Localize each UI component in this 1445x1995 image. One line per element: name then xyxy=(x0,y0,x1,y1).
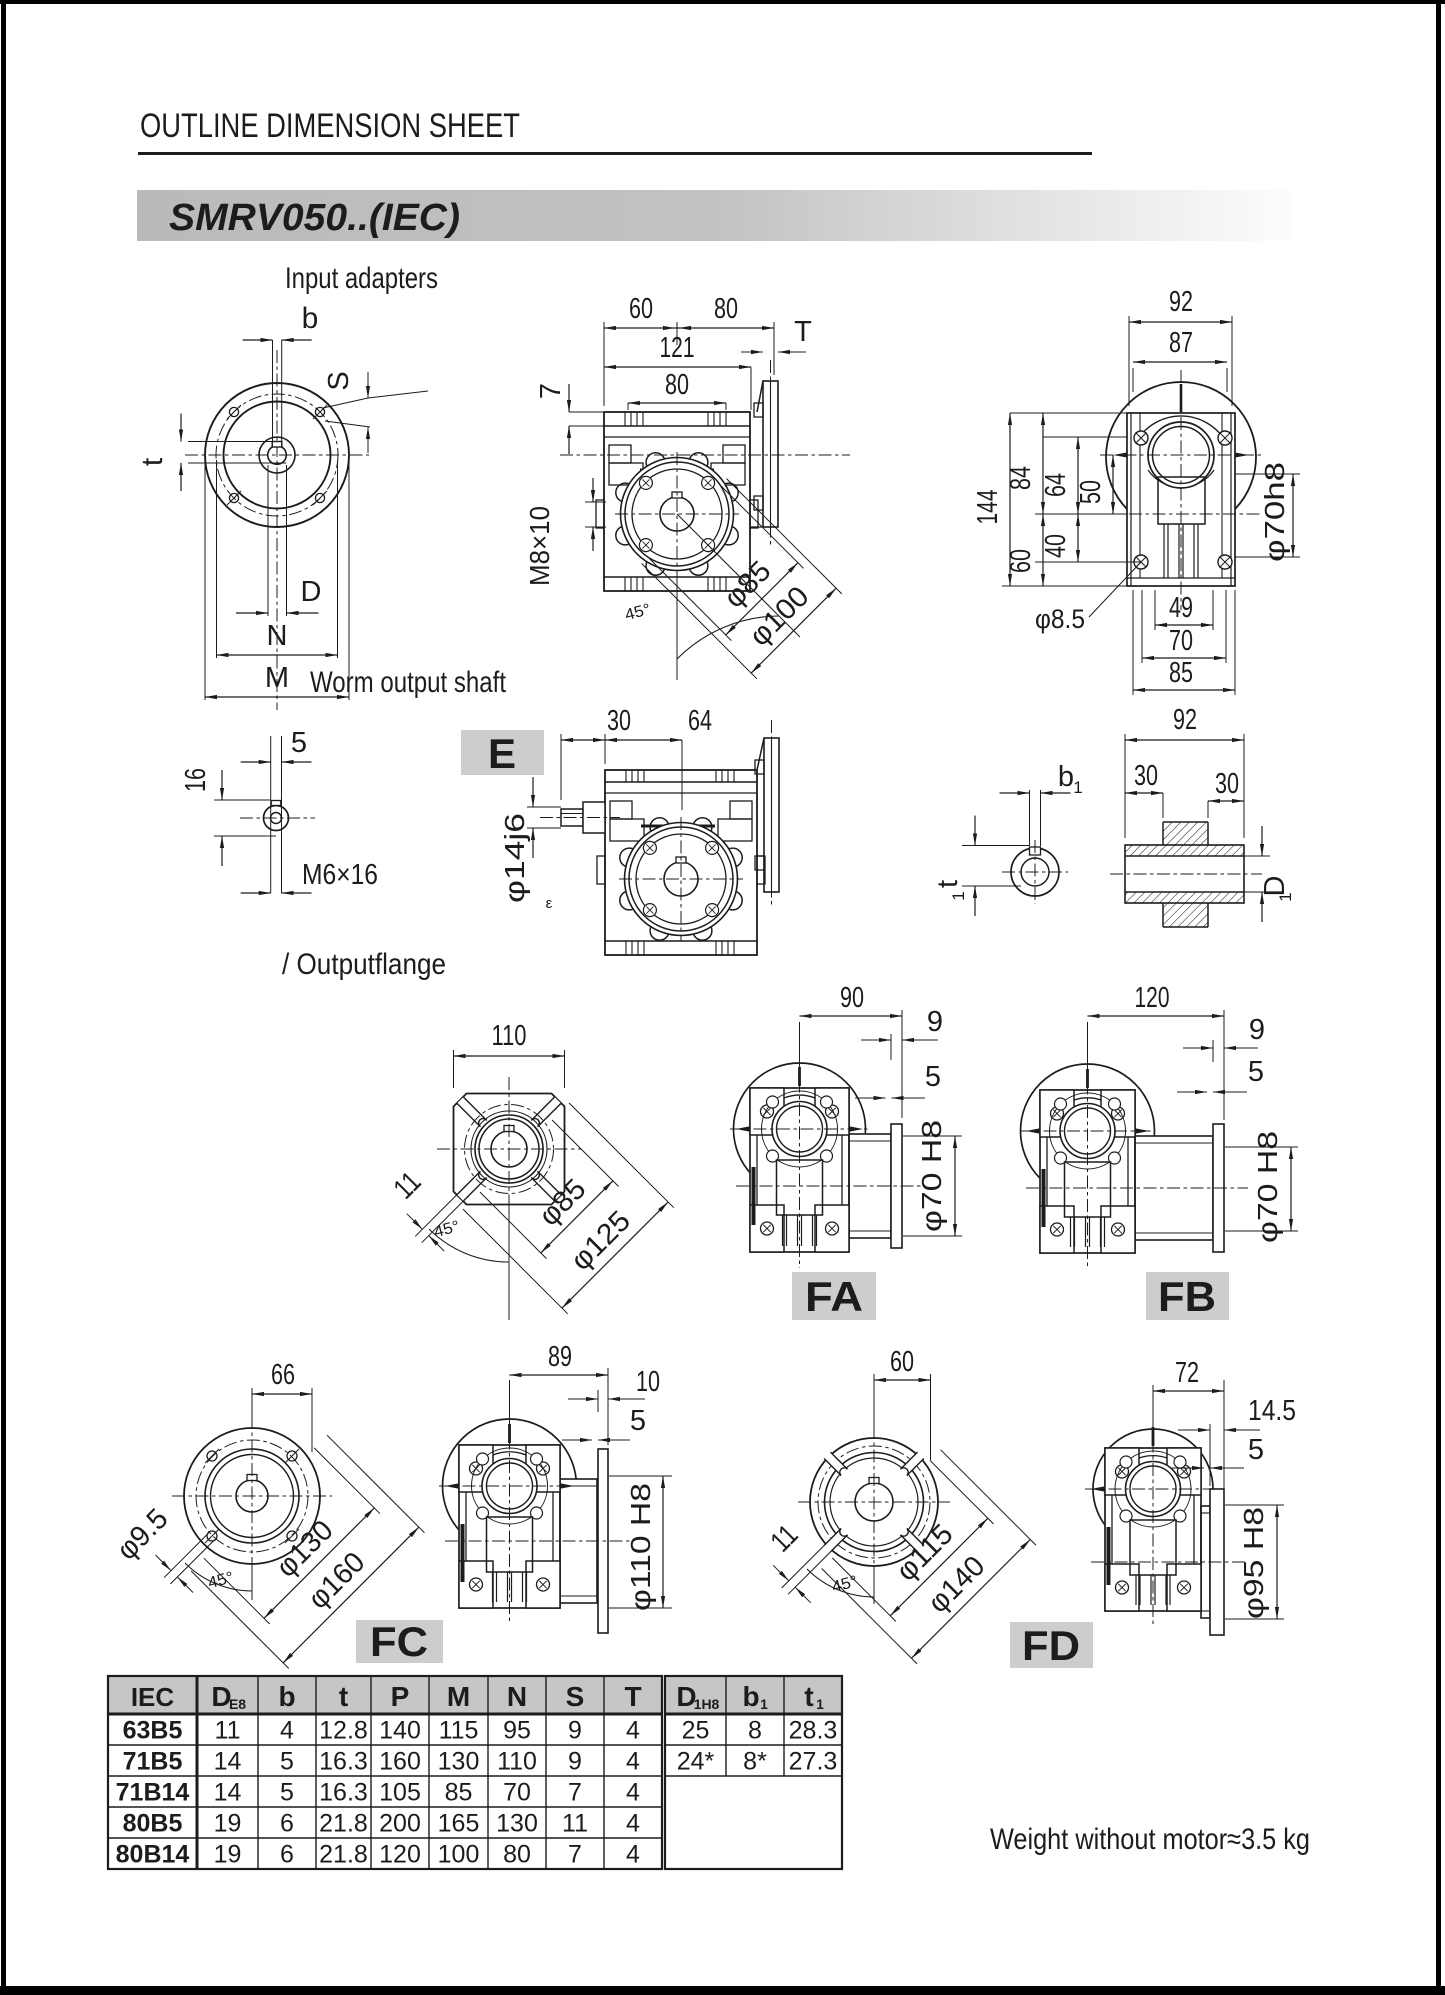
svg-text:27.3: 27.3 xyxy=(789,1748,838,1776)
svg-text:70: 70 xyxy=(1169,625,1193,657)
svg-text:130: 130 xyxy=(496,1810,538,1838)
svg-text:8: 8 xyxy=(748,1717,762,1745)
svg-text:φ110 H8: φ110 H8 xyxy=(625,1483,656,1611)
svg-text:1: 1 xyxy=(816,1696,824,1712)
svg-text:49: 49 xyxy=(1169,592,1193,624)
svg-text:FA: FA xyxy=(805,1273,863,1320)
svg-text:80: 80 xyxy=(714,293,738,325)
svg-text:92: 92 xyxy=(1173,704,1197,736)
svg-text:60: 60 xyxy=(890,1346,914,1378)
svg-text:Weight without motor≈3.5 kg: Weight without motor≈3.5 kg xyxy=(990,1823,1310,1856)
svg-text:16.3: 16.3 xyxy=(319,1779,368,1807)
svg-text:16: 16 xyxy=(180,768,212,792)
svg-text:8*: 8* xyxy=(743,1748,767,1776)
svg-text:OUTLINE DIMENSION SHEET: OUTLINE DIMENSION SHEET xyxy=(140,107,520,145)
svg-text:110: 110 xyxy=(492,1020,527,1052)
svg-text:16.3: 16.3 xyxy=(319,1748,368,1776)
svg-text:5: 5 xyxy=(630,1405,646,1437)
svg-text:Worm output shaft: Worm output shaft xyxy=(310,666,507,699)
svg-text:N: N xyxy=(507,1681,527,1712)
svg-text:120: 120 xyxy=(379,1841,421,1869)
svg-text:24*: 24* xyxy=(677,1748,715,1776)
svg-text:t: t xyxy=(136,457,169,466)
svg-text:66: 66 xyxy=(271,1359,295,1391)
svg-text:64: 64 xyxy=(688,705,712,737)
svg-text:SMRV050..(IEC): SMRV050..(IEC) xyxy=(169,197,460,239)
svg-text:95: 95 xyxy=(503,1717,531,1745)
svg-text:φ125: φ125 xyxy=(565,1205,637,1277)
svg-text:19: 19 xyxy=(214,1810,242,1838)
svg-text:19: 19 xyxy=(214,1841,242,1869)
svg-text:M: M xyxy=(447,1681,470,1712)
svg-text:63B5: 63B5 xyxy=(123,1717,183,1745)
svg-text:72: 72 xyxy=(1175,1357,1199,1389)
svg-text:4: 4 xyxy=(626,1748,640,1776)
svg-text:120: 120 xyxy=(1135,982,1170,1014)
svg-text:105: 105 xyxy=(379,1779,421,1807)
svg-text:E: E xyxy=(488,730,516,777)
svg-text:b: b xyxy=(742,1681,759,1712)
svg-text:4: 4 xyxy=(280,1717,294,1745)
svg-text:64: 64 xyxy=(1040,473,1072,497)
svg-text:71B5: 71B5 xyxy=(123,1748,183,1776)
svg-text:5: 5 xyxy=(280,1779,294,1807)
svg-text:/ Outputflange: / Outputflange xyxy=(282,948,446,981)
svg-text:t: t xyxy=(932,880,964,888)
svg-text:30: 30 xyxy=(1215,768,1239,800)
svg-text:T: T xyxy=(624,1681,641,1712)
svg-text:φ70h8: φ70h8 xyxy=(1259,462,1290,562)
svg-text:7: 7 xyxy=(535,383,567,399)
svg-text:130: 130 xyxy=(438,1748,480,1776)
svg-text:50: 50 xyxy=(1075,480,1107,504)
svg-text:115: 115 xyxy=(439,1717,479,1745)
svg-text:7: 7 xyxy=(568,1779,582,1807)
svg-text:ε: ε xyxy=(546,895,553,912)
svg-text:E8: E8 xyxy=(229,1696,246,1712)
svg-text:30: 30 xyxy=(1134,760,1158,792)
svg-text:4: 4 xyxy=(626,1841,640,1869)
svg-text:80B14: 80B14 xyxy=(116,1841,190,1869)
svg-text:T: T xyxy=(794,316,812,348)
svg-text:9: 9 xyxy=(568,1717,582,1745)
svg-text:7: 7 xyxy=(568,1841,582,1869)
svg-text:45°: 45° xyxy=(623,601,653,624)
svg-text:89: 89 xyxy=(548,1341,572,1373)
svg-text:FD: FD xyxy=(1022,1622,1080,1669)
svg-text:φ95 H8: φ95 H8 xyxy=(1238,1507,1269,1619)
svg-text:t: t xyxy=(339,1681,348,1712)
svg-text:S: S xyxy=(323,371,355,390)
svg-text:5: 5 xyxy=(925,1061,941,1093)
svg-text:85: 85 xyxy=(445,1779,473,1807)
svg-text:5: 5 xyxy=(1248,1056,1264,1088)
svg-text:28.3: 28.3 xyxy=(789,1717,838,1745)
svg-text:21.8: 21.8 xyxy=(319,1841,368,1869)
svg-text:IEC: IEC xyxy=(131,1682,175,1712)
svg-text:4: 4 xyxy=(626,1717,640,1745)
svg-text:60: 60 xyxy=(629,293,653,325)
svg-text:6: 6 xyxy=(280,1810,294,1838)
svg-text:FC: FC xyxy=(370,1618,428,1665)
svg-text:9: 9 xyxy=(927,1006,943,1038)
svg-text:200: 200 xyxy=(379,1810,421,1838)
svg-text:45°: 45° xyxy=(830,1573,860,1596)
svg-text:11: 11 xyxy=(562,1810,588,1838)
svg-text:30: 30 xyxy=(607,705,631,737)
svg-text:21.8: 21.8 xyxy=(319,1810,368,1838)
svg-text:165: 165 xyxy=(438,1810,480,1838)
svg-text:9: 9 xyxy=(568,1748,582,1776)
svg-text:4: 4 xyxy=(626,1779,640,1807)
svg-text:71B14: 71B14 xyxy=(116,1779,190,1807)
svg-text:60: 60 xyxy=(1005,549,1037,573)
svg-text:11: 11 xyxy=(388,1166,428,1206)
svg-text:φ8.5: φ8.5 xyxy=(1035,604,1085,634)
svg-text:S: S xyxy=(566,1681,585,1712)
svg-text:φ70 H8: φ70 H8 xyxy=(916,1120,947,1232)
svg-text:80: 80 xyxy=(503,1841,531,1869)
svg-text:φ70 H8: φ70 H8 xyxy=(1252,1131,1283,1243)
svg-text:φ14j6: φ14j6 xyxy=(499,813,530,903)
svg-text:84: 84 xyxy=(1005,466,1037,490)
svg-text:D: D xyxy=(301,576,322,608)
svg-text:φ9.5: φ9.5 xyxy=(111,1503,175,1567)
svg-text:M6×16: M6×16 xyxy=(302,859,378,891)
svg-text:140: 140 xyxy=(379,1717,421,1745)
svg-text:1: 1 xyxy=(1073,778,1082,797)
svg-text:92: 92 xyxy=(1169,286,1193,318)
svg-text:12.8: 12.8 xyxy=(319,1717,368,1745)
svg-text:87: 87 xyxy=(1169,327,1193,359)
svg-text:b: b xyxy=(278,1681,295,1712)
svg-text:4: 4 xyxy=(626,1810,640,1838)
svg-text:144: 144 xyxy=(972,490,1004,525)
svg-text:70: 70 xyxy=(503,1779,531,1807)
svg-text:P: P xyxy=(391,1681,410,1712)
svg-text:6: 6 xyxy=(280,1841,294,1869)
svg-text:90: 90 xyxy=(840,982,864,1014)
svg-text:b: b xyxy=(1058,761,1074,793)
svg-text:11: 11 xyxy=(765,1519,805,1559)
svg-text:14.5: 14.5 xyxy=(1248,1395,1296,1427)
svg-text:1: 1 xyxy=(1276,892,1295,901)
svg-text:110: 110 xyxy=(497,1748,537,1776)
svg-text:1H8: 1H8 xyxy=(694,1696,720,1712)
svg-text:M8×10: M8×10 xyxy=(524,506,555,586)
svg-text:160: 160 xyxy=(379,1748,421,1776)
svg-text:80B5: 80B5 xyxy=(123,1810,183,1838)
svg-text:9: 9 xyxy=(1249,1014,1265,1046)
svg-text:5: 5 xyxy=(280,1748,294,1776)
svg-text:Input adapters: Input adapters xyxy=(285,262,438,295)
svg-text:40: 40 xyxy=(1040,534,1072,558)
svg-text:85: 85 xyxy=(1169,657,1193,689)
svg-text:121: 121 xyxy=(660,332,695,364)
svg-text:1: 1 xyxy=(760,1696,768,1712)
svg-text:1: 1 xyxy=(949,891,968,900)
svg-text:80: 80 xyxy=(665,369,689,401)
svg-text:5: 5 xyxy=(1248,1434,1264,1466)
svg-text:45°: 45° xyxy=(432,1218,462,1241)
svg-text:14: 14 xyxy=(214,1779,242,1807)
svg-text:t: t xyxy=(804,1681,813,1712)
svg-text:25: 25 xyxy=(682,1717,710,1745)
svg-text:11: 11 xyxy=(215,1717,241,1745)
svg-text:b: b xyxy=(302,302,319,335)
svg-text:100: 100 xyxy=(438,1841,480,1869)
svg-text:14: 14 xyxy=(214,1748,242,1776)
svg-text:FB: FB xyxy=(1158,1273,1216,1320)
svg-text:10: 10 xyxy=(636,1366,660,1398)
svg-text:5: 5 xyxy=(291,727,307,759)
